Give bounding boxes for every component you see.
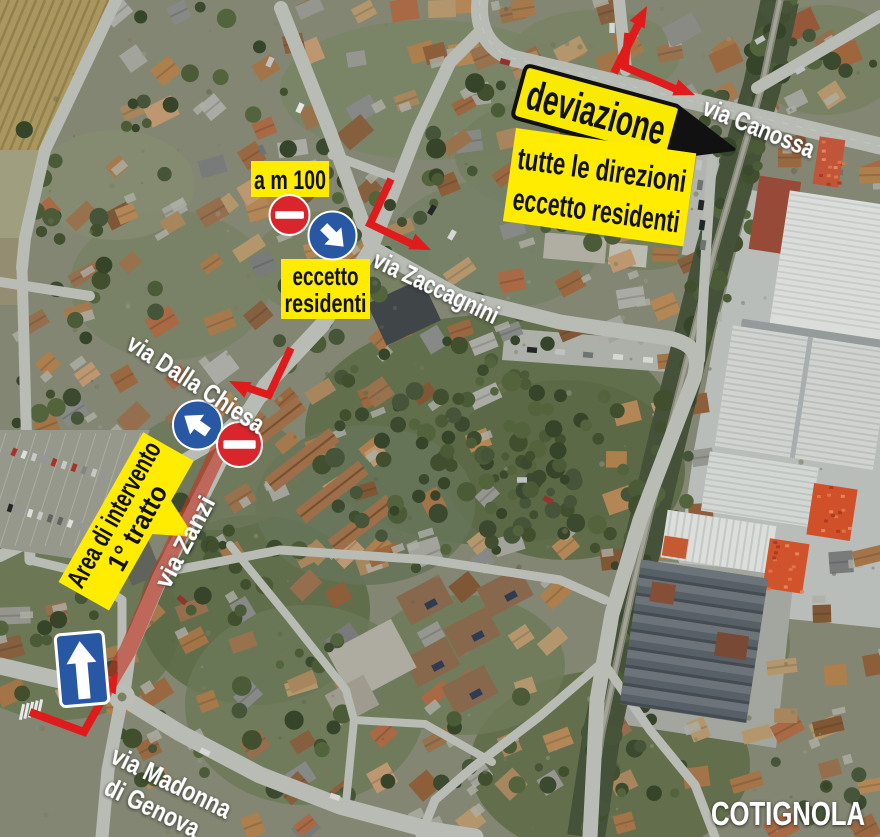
svg-text:COTIGNOLA: COTIGNOLA xyxy=(711,795,865,832)
svg-text:eccetto: eccetto xyxy=(293,261,359,291)
svg-text:residenti: residenti xyxy=(285,288,367,318)
svg-text:a m 100: a m 100 xyxy=(254,165,326,195)
